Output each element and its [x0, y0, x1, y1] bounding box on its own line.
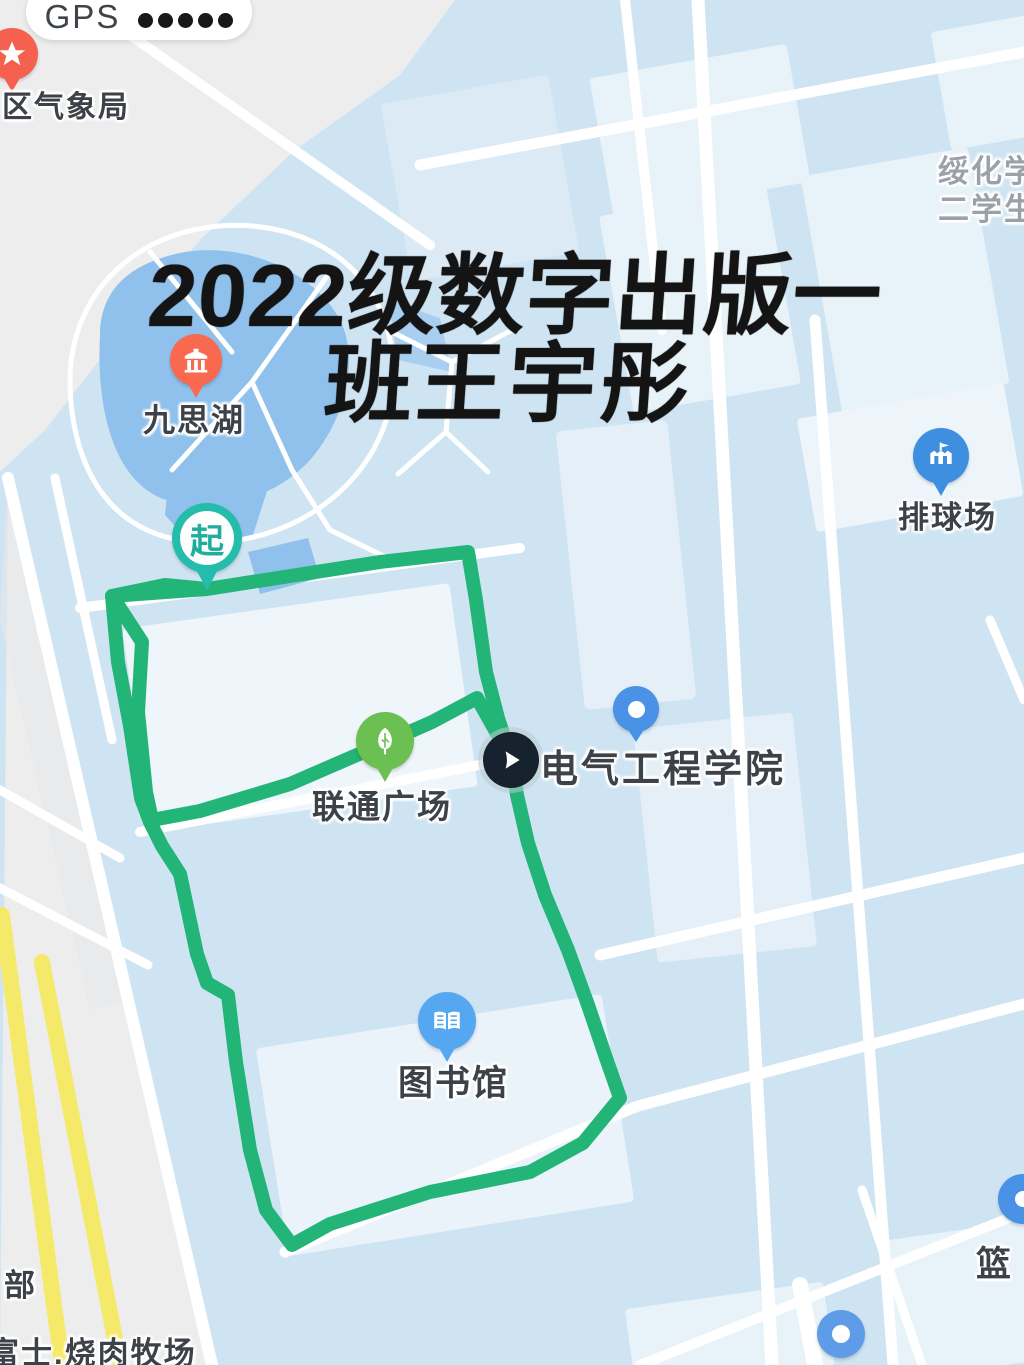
basketball-pin[interactable]: [998, 1174, 1024, 1224]
tree-icon: [369, 725, 401, 757]
library-label[interactable]: 图书馆: [398, 1055, 509, 1106]
run-route-layer: [0, 0, 1024, 1365]
overlay-title: 2022级数字出版一 班王宇彤: [0, 252, 1024, 428]
gps-dot: [198, 13, 213, 28]
department-label[interactable]: 部: [4, 1260, 37, 1305]
stadium-flag-icon: [925, 440, 957, 472]
unicom-plaza-label[interactable]: 联通广场: [312, 780, 452, 828]
bottom-blue-pin[interactable]: [817, 1310, 865, 1358]
start-marker[interactable]: 起: [172, 503, 242, 573]
bbq-restaurant-label[interactable]: 富士.烧肉牧场: [0, 1328, 197, 1365]
play-icon: [498, 747, 524, 773]
start-marker-text: 起: [190, 514, 224, 563]
gps-status-pill: GPS: [26, 0, 252, 40]
gps-signal-dots: [138, 13, 233, 33]
run-tracking-screenshot: 区气象局 九思湖 绥化学 二学生: [0, 0, 1024, 1365]
star-icon: [0, 39, 27, 69]
electrical-college-pin[interactable]: [613, 686, 659, 732]
weather-station-pin[interactable]: [0, 28, 38, 80]
gps-label: GPS: [45, 0, 121, 33]
run-route-outer: [112, 552, 620, 1245]
overlay-title-line1: 2022级数字出版一: [0, 252, 1024, 340]
library-pin[interactable]: [418, 992, 476, 1050]
overlay-title-line2: 班王宇彤: [0, 340, 1024, 428]
gps-dot: [158, 13, 173, 28]
gps-dot: [138, 13, 153, 28]
volleyball-label[interactable]: 排球场: [898, 492, 997, 537]
unicom-plaza-pin[interactable]: [356, 712, 414, 770]
gps-dot: [218, 13, 233, 28]
play-position-button[interactable]: [478, 727, 544, 793]
book-icon: [430, 1004, 464, 1038]
gps-dot: [178, 13, 193, 28]
basketball-label[interactable]: 篮: [976, 1236, 1013, 1287]
weather-station-label[interactable]: 区气象局: [2, 82, 130, 126]
electrical-college-label[interactable]: 电气工程学院: [540, 738, 786, 793]
volleyball-pin[interactable]: [913, 428, 969, 484]
campus-label-line2[interactable]: 二学生: [938, 184, 1024, 229]
